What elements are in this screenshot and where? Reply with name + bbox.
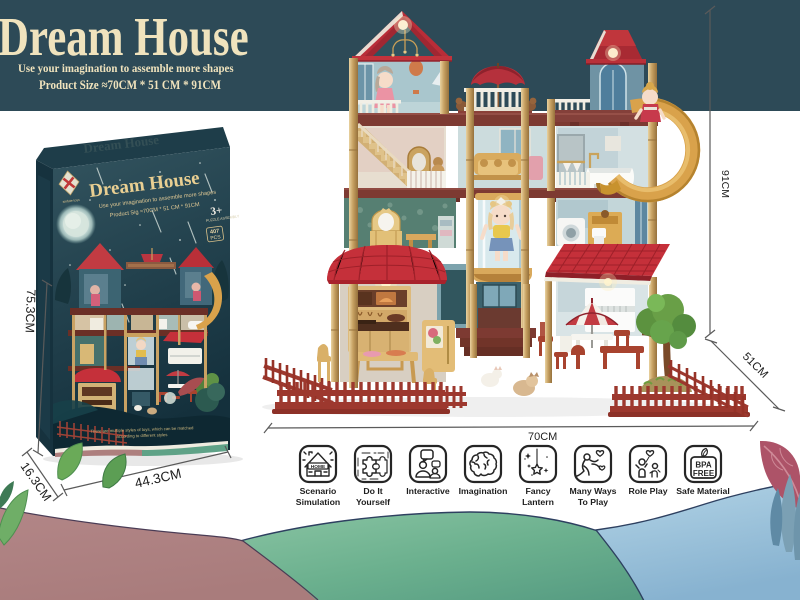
svg-text:FREE: FREE [693,469,715,478]
svg-text:44.3CM: 44.3CM [133,466,182,491]
svg-text:51CM: 51CM [740,351,770,381]
svg-text:91CM: 91CM [719,170,731,198]
svg-text:70CM: 70CM [528,431,557,443]
svg-text:75.3CM: 75.3CM [22,289,38,333]
svg-text:HOME: HOME [311,464,326,470]
